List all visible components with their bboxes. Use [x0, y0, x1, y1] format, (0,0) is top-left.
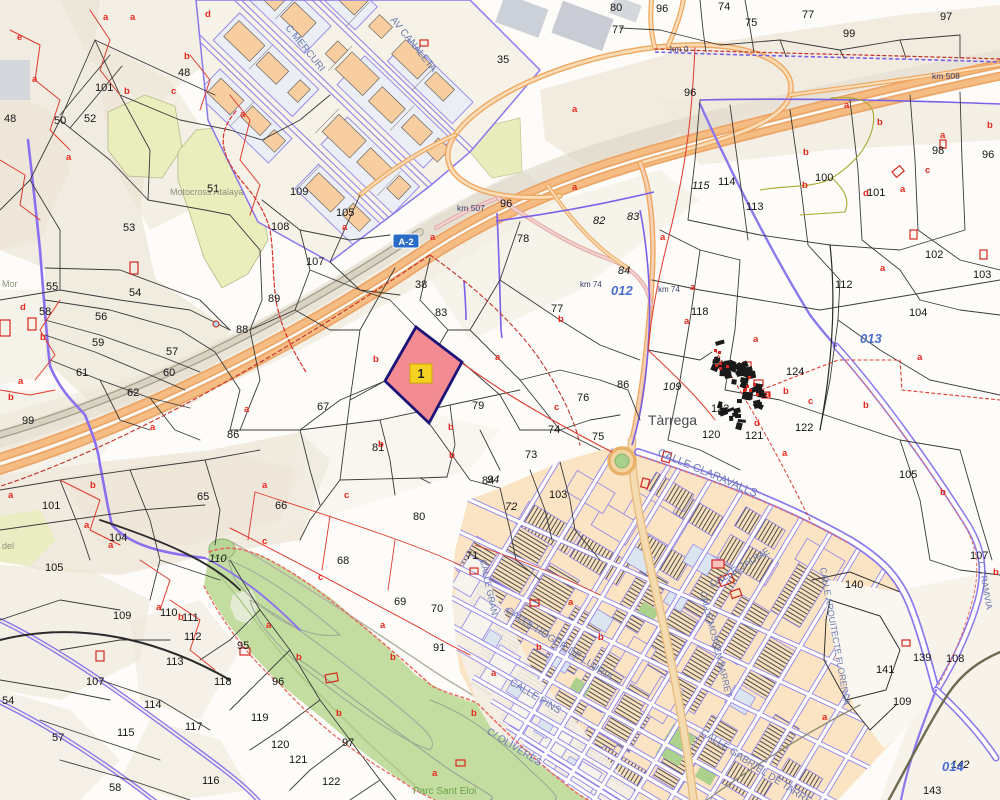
svg-text:105: 105 [336, 207, 354, 219]
svg-text:104: 104 [909, 307, 927, 319]
svg-text:b: b [993, 567, 999, 578]
svg-text:a: a [572, 182, 578, 193]
svg-text:a: a [753, 334, 759, 345]
svg-text:103: 103 [549, 489, 567, 501]
svg-text:96: 96 [656, 3, 668, 15]
svg-text:113: 113 [166, 656, 184, 668]
svg-text:99: 99 [843, 28, 855, 40]
svg-text:59: 59 [92, 337, 104, 349]
svg-text:102: 102 [925, 249, 943, 261]
svg-text:48: 48 [178, 67, 190, 79]
svg-text:80: 80 [413, 511, 425, 523]
svg-text:78: 78 [517, 233, 529, 245]
svg-text:b: b [178, 612, 184, 623]
svg-text:b: b [184, 51, 190, 62]
svg-text:95: 95 [237, 640, 249, 652]
svg-text:89: 89 [268, 293, 280, 305]
svg-text:110: 110 [209, 553, 227, 565]
svg-text:116: 116 [202, 775, 220, 787]
svg-text:50: 50 [54, 115, 66, 127]
svg-text:b: b [803, 147, 809, 158]
svg-text:a: a [880, 263, 886, 274]
svg-text:a: a [103, 12, 109, 23]
svg-text:99: 99 [22, 415, 34, 427]
svg-text:115: 115 [117, 727, 135, 739]
svg-text:109: 109 [113, 610, 131, 622]
svg-text:115: 115 [692, 180, 710, 192]
svg-text:96: 96 [684, 87, 696, 99]
svg-text:a: a [108, 540, 114, 551]
svg-text:54: 54 [2, 695, 14, 707]
svg-text:b: b [40, 332, 46, 343]
svg-text:012: 012 [611, 283, 633, 298]
svg-text:A-2: A-2 [398, 237, 413, 248]
svg-text:111: 111 [182, 612, 199, 624]
svg-text:c: c [171, 86, 176, 97]
svg-text:114: 114 [718, 176, 736, 188]
svg-text:b: b [598, 632, 604, 643]
svg-text:d: d [754, 418, 760, 429]
svg-text:b: b [373, 354, 379, 365]
svg-text:a: a [244, 404, 250, 415]
svg-text:96: 96 [500, 198, 512, 210]
svg-text:110: 110 [160, 607, 178, 619]
svg-text:94: 94 [487, 474, 499, 486]
svg-text:a: a [130, 12, 136, 23]
svg-text:km 74: km 74 [658, 285, 680, 294]
svg-text:107: 107 [306, 256, 324, 268]
svg-text:48: 48 [4, 113, 16, 125]
svg-text:108: 108 [271, 221, 289, 233]
svg-text:109: 109 [663, 381, 681, 393]
svg-text:km 507: km 507 [457, 203, 485, 213]
svg-text:a: a [380, 620, 386, 631]
svg-text:107: 107 [86, 676, 104, 688]
svg-text:e: e [17, 32, 22, 43]
svg-text:121: 121 [745, 430, 763, 442]
svg-text:a: a [32, 74, 38, 85]
svg-text:a: a [84, 520, 90, 531]
svg-text:58: 58 [39, 306, 51, 318]
svg-text:86: 86 [227, 429, 239, 441]
svg-text:a: a [8, 490, 14, 501]
svg-text:97: 97 [342, 737, 354, 749]
svg-text:100: 100 [815, 172, 833, 184]
svg-text:101: 101 [95, 82, 113, 94]
svg-text:83: 83 [435, 307, 447, 319]
svg-text:56: 56 [95, 311, 107, 323]
svg-text:c: c [554, 402, 559, 413]
svg-text:141: 141 [876, 664, 894, 676]
svg-text:75: 75 [745, 17, 757, 29]
svg-text:122: 122 [322, 776, 340, 788]
svg-text:118: 118 [691, 306, 709, 318]
svg-text:a: a [342, 222, 348, 233]
svg-text:a: a [568, 597, 574, 608]
svg-text:98: 98 [932, 145, 944, 157]
svg-text:b: b [877, 117, 883, 128]
svg-text:1: 1 [418, 367, 425, 381]
svg-text:120: 120 [271, 739, 289, 751]
svg-text:a: a [495, 352, 501, 363]
svg-text:54: 54 [129, 287, 141, 299]
svg-text:b: b [558, 314, 564, 325]
svg-text:121: 121 [289, 754, 307, 766]
svg-text:71: 71 [466, 550, 478, 562]
svg-text:119: 119 [251, 712, 269, 724]
svg-text:57: 57 [52, 732, 64, 744]
svg-text:Motocross Atalaya: Motocross Atalaya [170, 187, 244, 197]
svg-text:a: a [432, 768, 438, 779]
svg-text:a: a [156, 602, 162, 613]
svg-text:b: b [336, 708, 342, 719]
svg-text:a: a [844, 100, 850, 111]
svg-text:109: 109 [290, 186, 308, 198]
svg-text:52: 52 [84, 113, 96, 125]
svg-text:122: 122 [795, 422, 813, 434]
svg-text:Parc Sant Eloi: Parc Sant Eloi [413, 786, 476, 797]
svg-text:76: 76 [577, 392, 589, 404]
svg-text:91: 91 [433, 642, 445, 654]
svg-text:d: d [20, 302, 26, 313]
svg-text:b: b [124, 86, 130, 97]
svg-text:a: a [822, 712, 828, 723]
svg-text:b: b [783, 386, 789, 397]
svg-text:103: 103 [973, 269, 991, 281]
svg-text:105: 105 [899, 469, 917, 481]
svg-text:114: 114 [144, 699, 162, 711]
svg-text:b: b [296, 652, 302, 663]
svg-text:105: 105 [45, 562, 63, 574]
svg-text:65: 65 [197, 491, 209, 503]
svg-text:b: b [536, 642, 542, 653]
svg-text:a: a [900, 184, 906, 195]
svg-text:75: 75 [592, 431, 604, 443]
svg-text:b: b [471, 708, 477, 719]
svg-text:60: 60 [163, 367, 175, 379]
svg-text:b: b [863, 400, 869, 411]
svg-text:139: 139 [913, 652, 931, 664]
svg-text:117: 117 [185, 721, 203, 733]
svg-text:74: 74 [718, 1, 730, 13]
svg-text:d: d [205, 9, 211, 20]
svg-text:62: 62 [127, 387, 139, 399]
svg-text:a: a [430, 232, 436, 243]
svg-text:c: c [925, 165, 930, 176]
svg-text:b: b [390, 652, 396, 663]
svg-text:a: a [690, 282, 696, 293]
svg-text:143: 143 [923, 785, 941, 797]
svg-text:35: 35 [497, 54, 509, 66]
svg-text:79: 79 [472, 400, 484, 412]
svg-text:101: 101 [867, 187, 885, 199]
svg-text:73: 73 [525, 449, 537, 461]
svg-text:a: a [684, 316, 690, 327]
svg-text:a: a [491, 668, 497, 679]
svg-text:014: 014 [942, 759, 964, 774]
svg-text:101: 101 [42, 500, 60, 512]
svg-text:b: b [8, 392, 14, 403]
svg-text:a: a [66, 152, 72, 163]
svg-text:123: 123 [711, 403, 729, 415]
svg-text:b: b [987, 120, 993, 131]
svg-text:55: 55 [46, 281, 58, 293]
svg-text:a: a [940, 130, 946, 141]
svg-text:96: 96 [272, 676, 284, 688]
svg-text:c: c [318, 572, 323, 583]
svg-text:b: b [90, 480, 96, 491]
svg-text:113: 113 [746, 201, 764, 213]
svg-text:108: 108 [946, 653, 964, 665]
svg-text:112: 112 [835, 279, 853, 291]
svg-text:68: 68 [337, 555, 349, 567]
svg-text:38: 38 [415, 279, 427, 291]
svg-text:58: 58 [109, 782, 121, 794]
svg-text:120: 120 [702, 429, 720, 441]
svg-text:a: a [262, 480, 268, 491]
svg-text:97: 97 [940, 11, 952, 23]
svg-text:b: b [378, 439, 384, 450]
svg-text:a: a [240, 109, 246, 120]
svg-text:74: 74 [548, 424, 560, 436]
svg-text:124: 124 [786, 366, 804, 378]
svg-text:Tàrrega: Tàrrega [648, 412, 697, 428]
svg-text:a: a [266, 620, 272, 631]
svg-text:c: c [262, 536, 267, 547]
svg-text:118: 118 [214, 676, 232, 688]
svg-text:96: 96 [982, 149, 994, 161]
svg-text:82: 82 [593, 215, 605, 227]
svg-text:d: d [863, 188, 869, 199]
svg-text:c: c [808, 396, 813, 407]
svg-text:c: c [344, 490, 349, 501]
svg-text:67: 67 [317, 401, 329, 413]
svg-text:a: a [572, 104, 578, 115]
svg-text:a: a [660, 232, 666, 243]
svg-text:77: 77 [802, 9, 814, 21]
svg-text:a: a [917, 352, 923, 363]
svg-text:53: 53 [123, 222, 135, 234]
svg-text:57: 57 [166, 346, 178, 358]
svg-text:km 508: km 508 [932, 71, 960, 81]
svg-text:del: del [2, 541, 14, 551]
svg-text:b: b [802, 180, 808, 191]
svg-text:61: 61 [76, 367, 88, 379]
svg-text:b: b [940, 487, 946, 498]
svg-text:66: 66 [275, 500, 287, 512]
svg-text:112: 112 [184, 631, 202, 643]
svg-text:69: 69 [394, 596, 406, 608]
svg-text:83: 83 [627, 211, 640, 223]
svg-text:b: b [449, 450, 455, 461]
svg-text:km 74: km 74 [580, 280, 602, 289]
svg-text:a: a [18, 376, 24, 387]
svg-text:a: a [782, 448, 788, 459]
svg-text:013: 013 [860, 331, 882, 346]
svg-text:Mor: Mor [2, 279, 18, 289]
svg-text:77: 77 [612, 24, 624, 36]
svg-text:km 0: km 0 [670, 44, 689, 54]
svg-text:b: b [448, 422, 454, 433]
svg-text:140: 140 [845, 579, 863, 591]
svg-text:70: 70 [431, 603, 443, 615]
svg-text:80: 80 [610, 2, 622, 14]
svg-text:72: 72 [505, 501, 517, 513]
svg-text:109: 109 [893, 696, 911, 708]
svg-text:a: a [150, 422, 156, 433]
svg-text:86: 86 [617, 379, 629, 391]
svg-text:84: 84 [618, 265, 630, 277]
svg-text:a: a [765, 389, 771, 400]
svg-text:88: 88 [236, 324, 248, 336]
